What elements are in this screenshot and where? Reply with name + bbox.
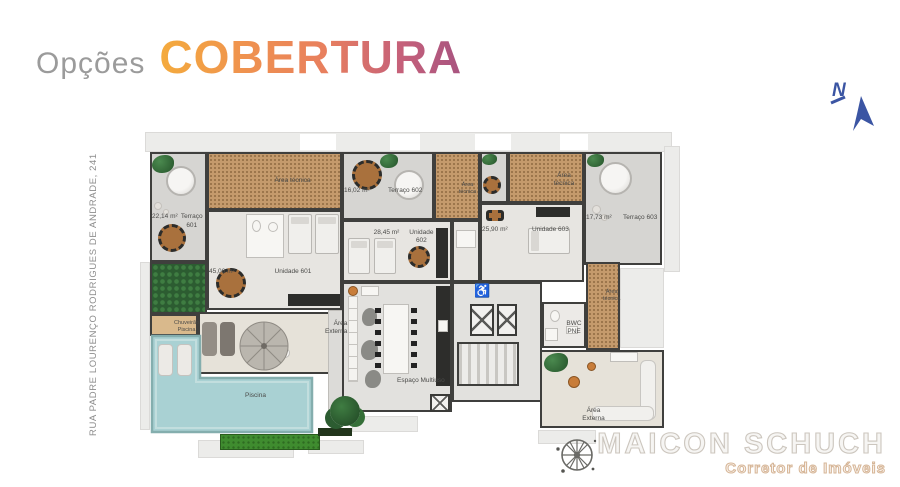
- planter-strip: [318, 428, 352, 436]
- room-area-tecnica-2: Área técnica: [434, 152, 480, 220]
- room-label: Unidade 601: [275, 268, 312, 276]
- kitchen-counter-icon: [536, 207, 570, 217]
- room-area: 45,06 m²: [209, 268, 235, 276]
- room-label: Terraço 603: [623, 214, 657, 222]
- bed-icon: [348, 238, 370, 274]
- slab-right-mid: [620, 268, 664, 348]
- room-label: Terraço 601: [179, 213, 206, 230]
- page-title: COBERTURA: [159, 30, 462, 84]
- sideboard-icon: [361, 286, 379, 296]
- bed-icon: [315, 214, 339, 254]
- floor-plan: Terraço 601 22,14 m² Área técnica Terraç…: [140, 110, 685, 462]
- slab-notch: [390, 134, 420, 150]
- lounger-icon: [220, 322, 235, 356]
- room-area: 16,02 m²: [344, 187, 370, 195]
- room-chuveirao-piscina: Chuveirão Piscina: [150, 314, 198, 336]
- bench-icon: [348, 296, 358, 382]
- page-subtitle: Opções: [36, 47, 145, 81]
- street-address: RUA PADRE LOURENÇO RODRIGUES DE ANDRADE,…: [88, 186, 99, 436]
- lounger-icon: [202, 322, 217, 356]
- round-table-icon: [483, 176, 501, 194]
- room-label: Área técnica: [546, 172, 582, 189]
- compass-rose-icon: [553, 431, 601, 479]
- room-area: 28,45 m²: [374, 229, 400, 237]
- room-label: Espaço Multiuso: [397, 377, 445, 385]
- room-label: Unidade 602: [405, 229, 437, 246]
- slab-right: [664, 146, 680, 272]
- elevator-icon: [470, 304, 494, 336]
- north-arrow-icon: N: [828, 76, 880, 134]
- sink-icon: [268, 222, 278, 232]
- page-header: Opções COBERTURA: [36, 30, 462, 84]
- brand-name: MAICON SCHUCH: [597, 430, 886, 459]
- kitchen-counter-icon: [288, 294, 340, 306]
- hanging-chair-icon: [166, 166, 196, 196]
- sink-icon: [438, 320, 448, 332]
- side-table-icon: [587, 362, 596, 371]
- slab-left: [140, 262, 150, 430]
- room-label: Área Externa: [325, 320, 347, 337]
- chair-row-icon: [411, 308, 417, 374]
- tree-icon: [330, 396, 360, 426]
- brand-tagline: Corretor de Imóveis: [597, 461, 886, 476]
- slab-notch: [300, 134, 336, 150]
- bench-icon: [610, 352, 638, 362]
- bathroom-icon: [246, 214, 284, 258]
- slab-notch: [560, 134, 588, 150]
- kitchen-counter-icon: [436, 228, 448, 278]
- stool-icon: [348, 286, 358, 296]
- bed-icon: [374, 238, 396, 274]
- room-label: Chuveirão Piscina: [174, 320, 199, 334]
- room-label: Área Externa: [577, 407, 610, 424]
- side-table-icon: [592, 205, 601, 214]
- grass-strip: [220, 434, 320, 450]
- bathroom-icon: [456, 230, 476, 248]
- room-label: BWC PNE: [564, 320, 584, 337]
- dining-table-icon: [408, 246, 430, 268]
- shaft-icon: [430, 394, 450, 412]
- room-label: Terraço 602: [388, 187, 422, 195]
- desk-icon: [486, 210, 504, 221]
- slab-notch: [475, 134, 511, 150]
- round-table-icon: [352, 160, 382, 190]
- room-label: Área técnica: [603, 289, 620, 303]
- counter-icon: [436, 286, 450, 386]
- room-area-tecnica-3: Área técnica: [508, 152, 584, 203]
- parasol-icon: [236, 320, 292, 372]
- room-bwc-pne: BWC PNE: [542, 302, 586, 348]
- toilet-icon: [252, 220, 261, 232]
- chair-row-icon: [375, 308, 381, 374]
- room-area: 25,90 m²: [482, 226, 508, 234]
- brand-block: MAICON SCHUCH Corretor de Imóveis: [553, 429, 886, 477]
- room-area-tecnica-4: Área técnica: [586, 262, 620, 350]
- stairs-icon: [457, 342, 519, 386]
- room-area-tecnica-1: Área técnica: [207, 152, 342, 210]
- slab-tab: [352, 416, 418, 432]
- long-table-icon: [383, 304, 409, 374]
- bed-icon: [288, 214, 312, 254]
- garden-bed: [150, 262, 207, 314]
- room-area: 22,14 m²: [152, 213, 178, 221]
- side-table-icon: [568, 376, 580, 388]
- side-table-icon: [154, 202, 162, 210]
- room-area: 17,73 m²: [586, 214, 612, 222]
- pool-lounger: [177, 344, 192, 376]
- shower-icon: [545, 328, 558, 341]
- pool-lounger: [158, 344, 173, 376]
- toilet-icon: [550, 310, 560, 322]
- hanging-chair-icon: [599, 162, 632, 195]
- wheelchair-icon: ♿: [474, 284, 490, 297]
- room-label: Unidade 603: [532, 226, 569, 234]
- elevator-icon: [497, 304, 517, 336]
- room-label: Área técnica: [457, 182, 478, 196]
- room-label: Área técnica: [275, 177, 311, 185]
